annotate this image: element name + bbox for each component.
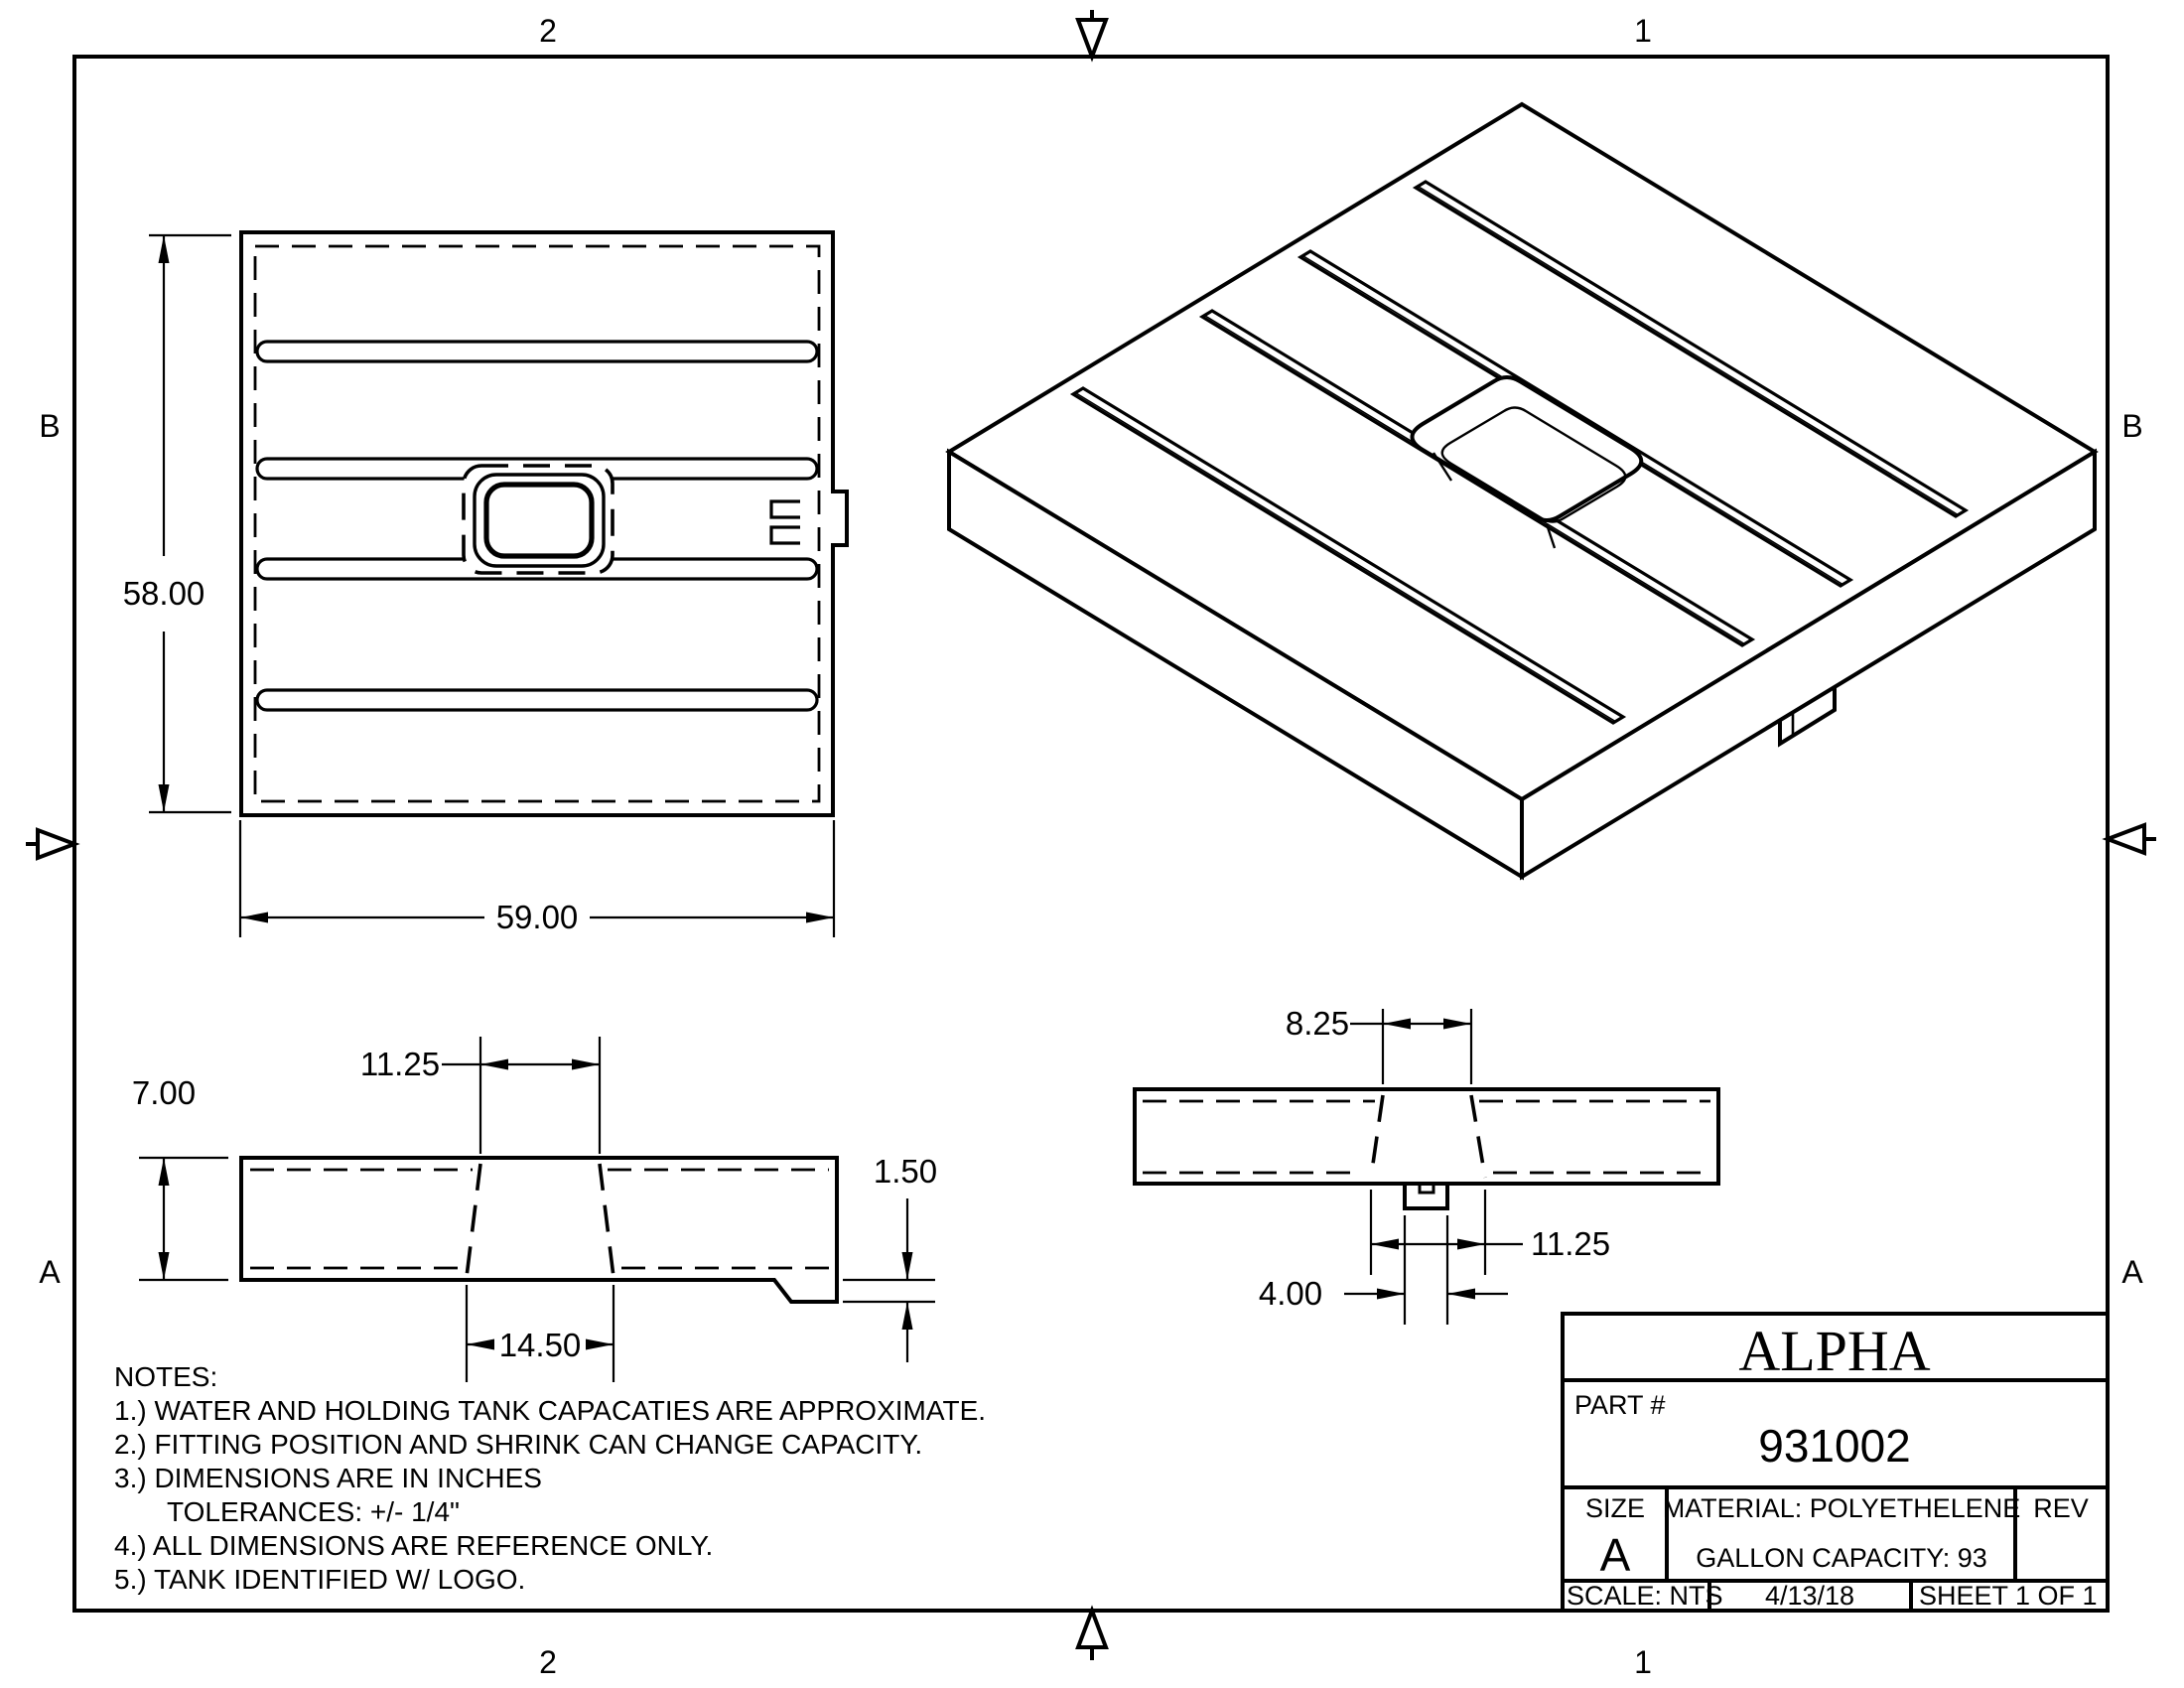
date-value: 4/13/18: [1765, 1581, 1854, 1611]
scale-value: SCALE: NTS: [1567, 1581, 1723, 1611]
part-number-value: 931002: [1758, 1420, 1911, 1472]
center-mark-bottom: [1078, 1611, 1106, 1660]
dim-7: 7.00: [132, 1074, 228, 1280]
end-section-view: 8.25 11.25 4.00: [1135, 1005, 1718, 1325]
size-label: SIZE: [1585, 1493, 1645, 1523]
drawing-canvas: 2 1 2 1 B A B A: [0, 0, 2184, 1688]
center-mark-top: [1078, 10, 1106, 57]
dim-7-value: 7.00: [132, 1074, 196, 1111]
zone-label-right-A: A: [2121, 1254, 2143, 1290]
dim-1125-side: 11.25: [360, 1037, 600, 1154]
sheet-value: SHEET 1 OF 1: [1919, 1581, 2098, 1611]
top-view: 58.00 59.00: [123, 232, 847, 937]
zone-label-bottom-2: 2: [539, 1644, 557, 1680]
dim-58: 58.00: [123, 235, 231, 812]
capacity-value: GALLON CAPACITY: 93: [1696, 1543, 1987, 1573]
dim-59-value: 59.00: [496, 899, 579, 935]
dim-150-value: 1.50: [874, 1153, 937, 1190]
dim-150: 1.50: [843, 1153, 937, 1362]
side-section-view: 7.00 11.25 14.50 1.50: [132, 1037, 937, 1382]
dim-400-value: 4.00: [1259, 1275, 1322, 1312]
center-mark-right: [2108, 825, 2156, 853]
rev-label: REV: [2033, 1493, 2089, 1523]
zone-label-right-B: B: [2121, 408, 2142, 444]
center-mark-left: [26, 830, 74, 858]
material-value: MATERIAL: POLYETHELENE: [1663, 1493, 2021, 1523]
zone-label-top-1: 1: [1634, 13, 1652, 49]
zone-label-left-A: A: [39, 1254, 61, 1290]
zone-label-left-B: B: [39, 408, 60, 444]
dim-1450-value: 14.50: [499, 1327, 582, 1363]
note-item-4: 4.) ALL DIMENSIONS ARE REFERENCE ONLY.: [114, 1530, 713, 1561]
title-block: ALPHA PART # 931002 SIZE A MATERIAL: POL…: [1563, 1314, 2108, 1611]
hatch-lip: [1405, 1184, 1447, 1208]
note-item-5: 5.) TANK IDENTIFIED W/ LOGO.: [114, 1564, 525, 1595]
dim-400: 4.00: [1259, 1215, 1508, 1325]
dim-1125-end-value: 11.25: [1531, 1225, 1610, 1262]
dim-1125-end: 11.25: [1371, 1190, 1610, 1275]
note-item-1: 1.) WATER AND HOLDING TANK CAPACATIES AR…: [114, 1395, 986, 1426]
zone-label-top-2: 2: [539, 13, 557, 49]
note-item-3: 3.) DIMENSIONS ARE IN INCHES: [114, 1463, 542, 1493]
drawing-sheet: 2 1 2 1 B A B A: [0, 0, 2184, 1688]
note-item-2: 2.) FITTING POSITION AND SHRINK CAN CHAN…: [114, 1429, 922, 1460]
zone-label-bottom-1: 1: [1634, 1644, 1652, 1680]
dim-825-value: 8.25: [1286, 1005, 1349, 1042]
dim-1450: 14.50: [467, 1285, 614, 1382]
notes-title: NOTES:: [114, 1361, 217, 1392]
dim-58-value: 58.00: [123, 575, 205, 612]
edge-tab-detail: [771, 492, 847, 545]
size-value: A: [1600, 1529, 1631, 1581]
hatch-opening-top-view: [464, 466, 613, 573]
note-item-tolerance: TOLERANCES: +/- 1/4": [167, 1496, 460, 1527]
slot-4: [257, 690, 817, 710]
part-number-label: PART #: [1574, 1390, 1666, 1420]
dim-59: 59.00: [240, 820, 834, 937]
title-block-brand: ALPHA: [1738, 1319, 1930, 1383]
dim-1125-side-value: 11.25: [360, 1046, 440, 1082]
notes-block: NOTES: 1.) WATER AND HOLDING TANK CAPACA…: [114, 1361, 986, 1595]
slot-1: [257, 342, 817, 361]
dim-825: 8.25: [1286, 1005, 1471, 1084]
isometric-view: [949, 104, 2095, 877]
